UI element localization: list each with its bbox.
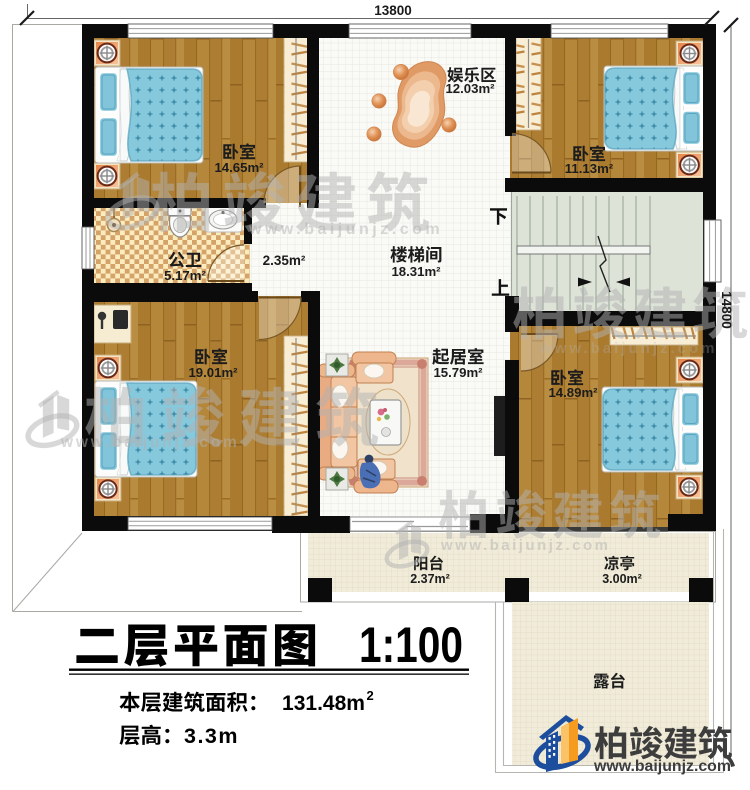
- svg-text:12.03m²: 12.03m²: [445, 81, 495, 96]
- svg-text:1:100: 1:100: [359, 617, 463, 673]
- svg-text:131.48m: 131.48m: [282, 691, 365, 715]
- svg-text:3.00m²: 3.00m²: [602, 572, 642, 586]
- svg-text:13800: 13800: [374, 3, 412, 18]
- svg-text:www.baijunjz.com: www.baijunjz.com: [248, 221, 443, 238]
- svg-text:2.35m²: 2.35m²: [263, 253, 306, 268]
- svg-text:14800: 14800: [719, 291, 734, 329]
- svg-text:11.13m²: 11.13m²: [565, 161, 614, 176]
- svg-text:2: 2: [367, 688, 374, 703]
- svg-text:www.baijunjz.com: www.baijunjz.com: [440, 537, 610, 554]
- svg-text:14.89m²: 14.89m²: [548, 385, 598, 400]
- svg-text:15.79m²: 15.79m²: [433, 365, 483, 380]
- svg-text:www.baijunjz.com: www.baijunjz.com: [539, 340, 717, 357]
- svg-text:19.01m²: 19.01m²: [188, 365, 238, 380]
- svg-text:www.baijunjz.com: www.baijunjz.com: [60, 434, 240, 451]
- svg-text:14.65m²: 14.65m²: [214, 160, 264, 175]
- svg-text:18.31m²: 18.31m²: [391, 264, 441, 279]
- svg-text:3.3m: 3.3m: [184, 724, 239, 748]
- svg-text:5.17m²: 5.17m²: [164, 268, 206, 283]
- svg-text:2.37m²: 2.37m²: [410, 572, 450, 586]
- svg-text:www.baijunjz.com: www.baijunjz.com: [593, 758, 731, 775]
